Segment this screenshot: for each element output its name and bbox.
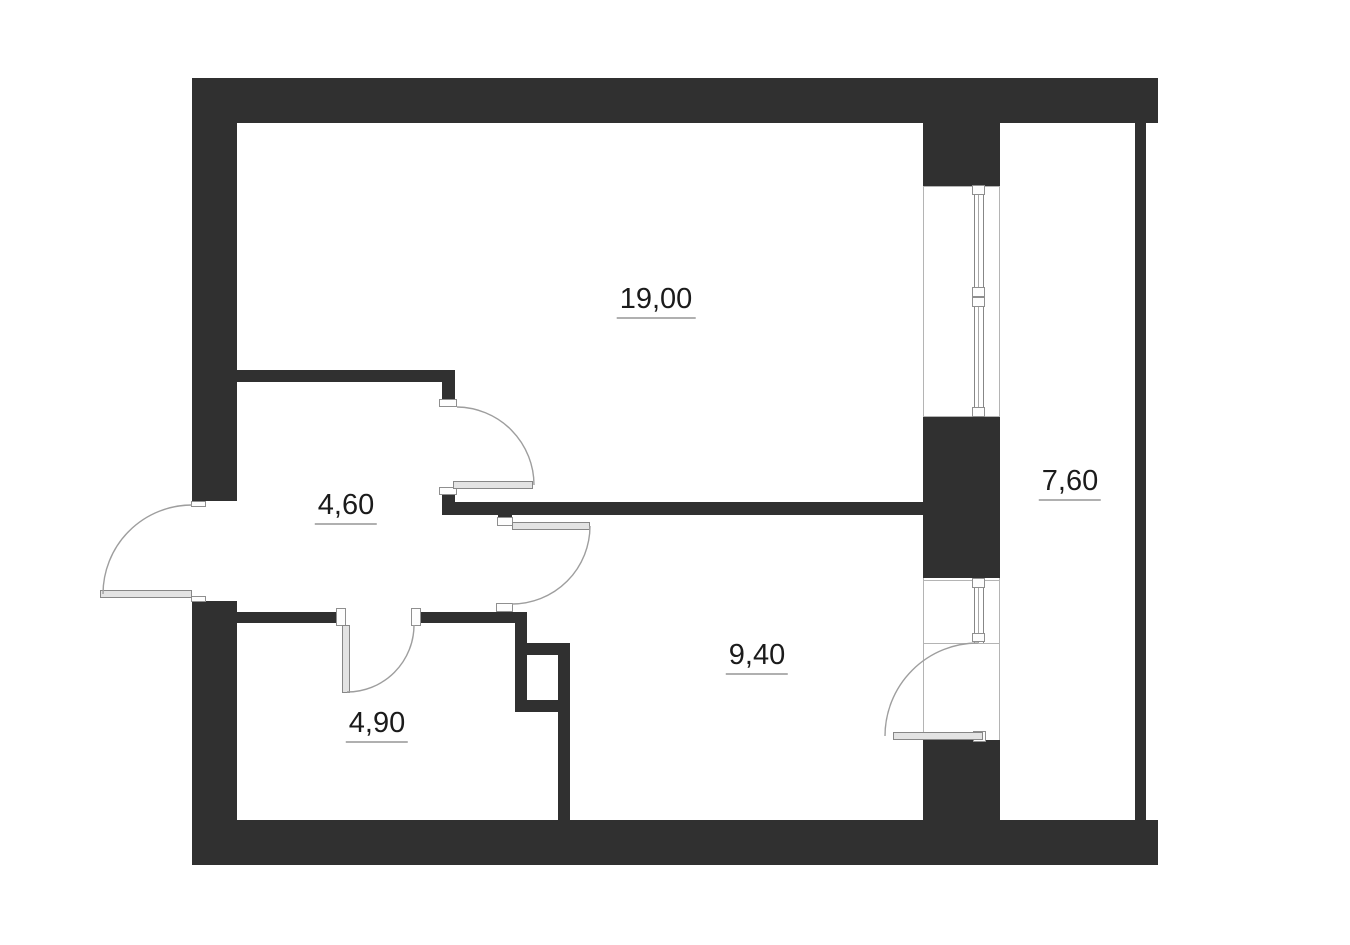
balcony-door-arc xyxy=(885,643,978,736)
bathroom-door-arc xyxy=(347,625,414,692)
door-swing-arcs xyxy=(0,0,1350,945)
entrance-door-arc xyxy=(103,505,192,594)
hallway-area-value: 4,60 xyxy=(315,490,377,525)
kitchen-area-value: 9,40 xyxy=(726,640,788,675)
hallway-area-label: 4,60 xyxy=(315,490,377,525)
bathroom-area-value: 4,90 xyxy=(346,708,408,743)
kitchen-area-label: 9,40 xyxy=(726,640,788,675)
floor-plan: 19,00 4,60 4,90 9,40 7,60 xyxy=(0,0,1350,945)
living-room-area-value: 19,00 xyxy=(617,284,696,319)
living-room-door-arc xyxy=(457,407,534,485)
living-room-area-label: 19,00 xyxy=(617,284,696,319)
kitchen-door-arc xyxy=(512,526,590,604)
balcony-area-label: 7,60 xyxy=(1039,466,1101,501)
bathroom-area-label: 4,90 xyxy=(346,708,408,743)
balcony-area-value: 7,60 xyxy=(1039,466,1101,501)
